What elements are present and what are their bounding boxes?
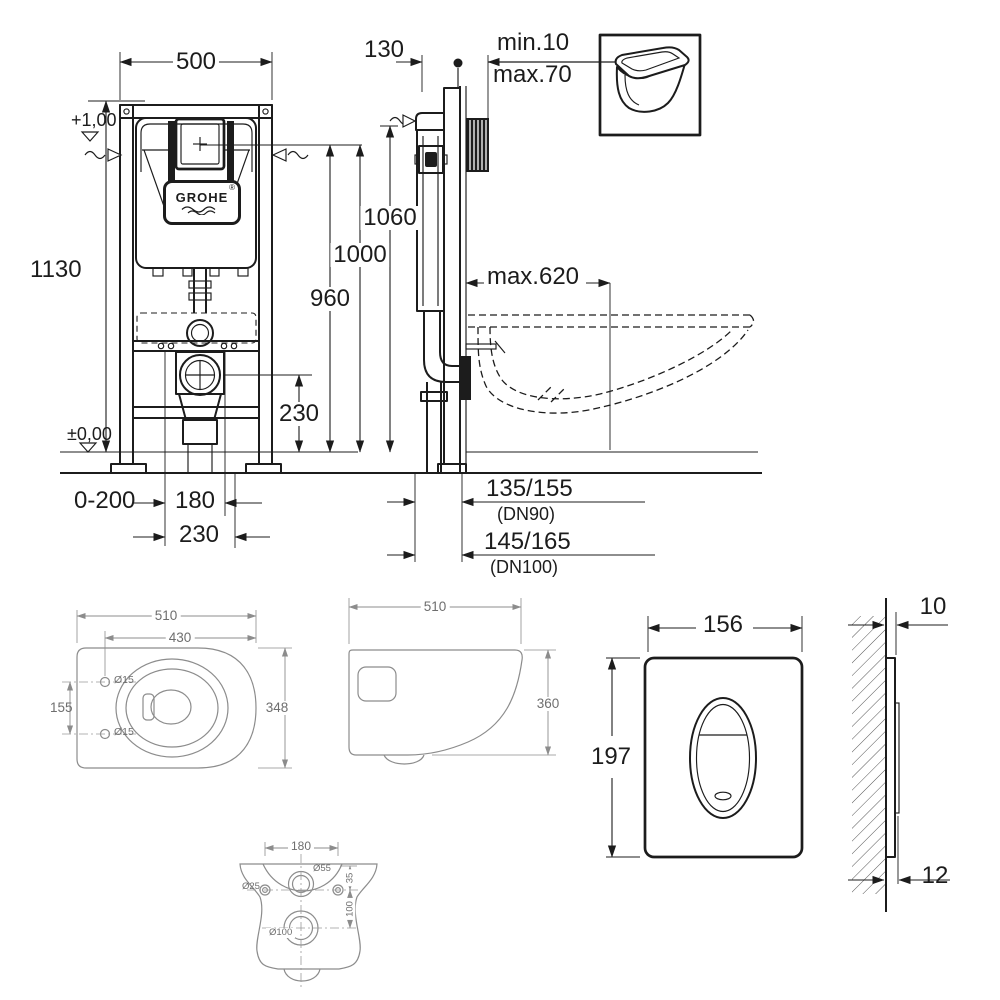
hole-diameter-bottom: Ø15 [114,727,134,738]
rear-outlet-offset: 100 [345,898,355,920]
rear-inlet-diameter: Ø55 [313,864,331,874]
dim-1060: 1060 [360,206,419,230]
rear-fixing-diameter: Ø25 [242,882,260,892]
flush-plate-front-view [606,616,802,857]
dim-960: 960 [307,287,353,311]
hole-diameter-top: Ø15 [114,675,134,686]
dim-plate-height: 197 [588,745,634,769]
dn100-note: (DN100) [490,558,558,576]
wall-hatch [852,616,886,894]
dim-frame-width: 500 [173,50,219,74]
registered-mark: ® [229,183,235,192]
dim-drain-height: 230 [276,402,322,426]
dim-wall-max: max.70 [493,63,572,87]
grohe-logo: GROHE ® [163,180,241,225]
toilet-inset-icon [600,35,700,135]
dim-wall-min: min.10 [497,31,569,55]
dim-bowl-projection: max.620 [484,265,582,289]
dim-bowl-side-height: 360 [534,697,563,711]
dim-frame-depth: 130 [364,38,404,62]
dim-dn100: 145/165 [484,530,571,554]
dim-drain-offset: 230 [179,523,219,547]
dim-plate-thickness: 12 [922,864,949,888]
dim-bowl-side-depth: 510 [421,600,450,614]
bowl-side-view [349,598,556,764]
dim-1000: 1000 [330,243,389,267]
dim-bolt-spacing: 180 [175,489,215,513]
level-upper: +1,00 [71,111,117,129]
dim-frame-height: 1130 [30,258,82,282]
dim-bowl-width: 348 [263,701,292,715]
brand-wordmark: GROHE [176,190,229,205]
bowl-rear-view [240,842,377,988]
dim-bowl-rim-offset: 430 [166,631,195,645]
rear-outlet-diameter: Ø100 [266,928,295,938]
dim-dn90: 135/155 [486,477,573,501]
dim-plate-protrusion: 10 [920,595,947,619]
dim-hole-spacing: 155 [50,701,73,715]
dn90-note: (DN90) [497,505,555,523]
dim-plate-width: 156 [703,613,743,637]
dim-bowl-top-depth: 510 [152,609,181,623]
dim-rear-hole-spacing: 180 [288,840,314,852]
plate-brand-mark [715,792,731,800]
level-zero: ±0,00 [67,425,112,443]
grohe-installation-drawing: GROHE ® 500 1130 +1,00 ±0,00 960 1000 0-… [0,0,1000,1000]
rear-inlet-offset: 35 [345,870,355,887]
dim-floor-buildup: 0-200 [74,489,135,513]
wave-icon [180,206,224,215]
